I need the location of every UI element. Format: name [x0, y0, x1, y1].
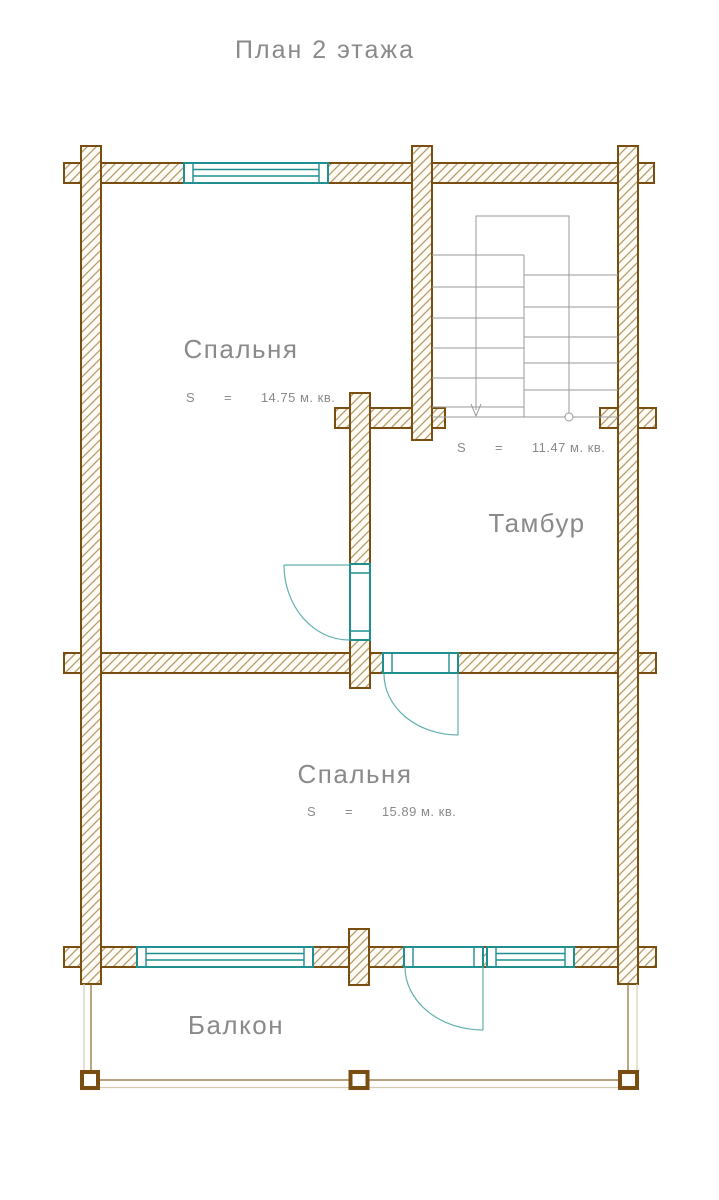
floor-plan-drawing — [0, 0, 719, 1200]
door-balcony — [404, 947, 483, 1030]
stairs-treads-left — [432, 255, 524, 407]
door-swing-arc — [405, 967, 483, 1030]
window-bottom-left — [137, 947, 313, 967]
balcony-post-left — [82, 1072, 98, 1088]
room-label-tambour: Тамбур — [488, 508, 585, 539]
door-bedroom-bottom — [383, 653, 458, 735]
top-wall — [64, 163, 654, 183]
page-title: План 2 этажа — [235, 36, 415, 65]
staircase — [432, 216, 618, 421]
right-wall — [618, 146, 638, 984]
vestibule-wall — [350, 393, 370, 688]
area-label-tambour: S = 11.47 м. кв. — [457, 440, 605, 455]
room-label-balcony: Балкон — [188, 1010, 284, 1041]
stairs-treads-right — [524, 275, 618, 390]
door-bedroom-top — [284, 564, 370, 640]
window-frame — [487, 947, 574, 967]
bottom-center-post — [349, 929, 369, 985]
door-swing-arc — [384, 674, 458, 735]
stairs-start-circle-icon — [565, 413, 573, 421]
area-label-bedroom-top: S = 14.75 м. кв. — [186, 390, 335, 405]
window-frame — [184, 163, 328, 183]
door-frame — [350, 564, 370, 640]
door-frame — [404, 947, 483, 967]
center-wall-upper — [412, 146, 432, 440]
balcony-railing — [82, 984, 637, 1088]
floor-plan-canvas: План 2 этажа Спальня S = 14.75 м. кв. S … — [0, 0, 719, 1200]
door-frame — [383, 653, 458, 673]
window-bottom-right — [487, 947, 574, 967]
left-wall — [81, 146, 101, 984]
balcony-post-right — [620, 1072, 637, 1088]
window-top — [184, 163, 328, 183]
stairs-walk-line — [476, 216, 569, 413]
window-frame — [137, 947, 313, 967]
balcony-post-middle — [351, 1072, 368, 1088]
room-label-bedroom-top: Спальня — [184, 334, 299, 365]
area-label-bedroom-bottom: S = 15.89 м. кв. — [307, 804, 456, 819]
door-swing-arc — [284, 565, 349, 640]
room-label-bedroom-bottom: Спальня — [298, 759, 413, 790]
